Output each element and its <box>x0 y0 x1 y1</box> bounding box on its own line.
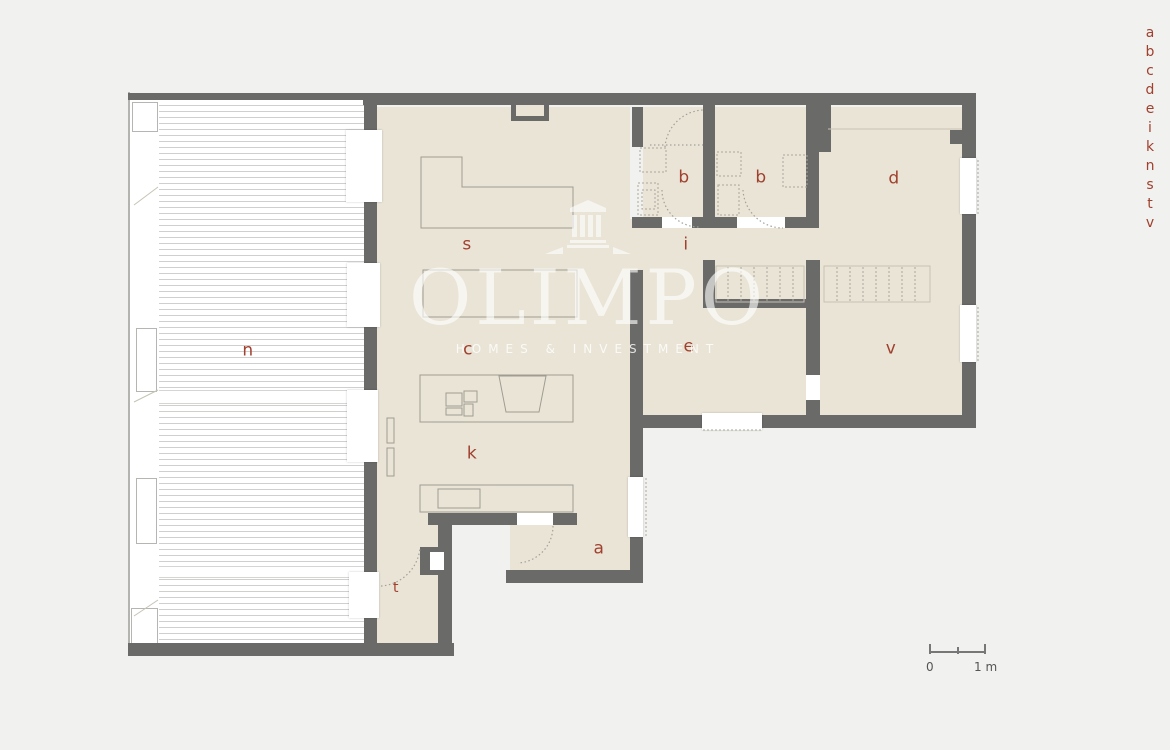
terrace-slider-window <box>347 263 380 327</box>
louver-panel <box>131 608 158 644</box>
legend-letter: k <box>1138 138 1162 157</box>
room-v-west-wall-upper <box>806 260 820 375</box>
floor-plan-canvas: s c k n t a b b i e d v OLIMPO HOMES & I… <box>0 0 1170 750</box>
kitchen-south-wall-right <box>553 513 577 525</box>
louver-panel <box>136 478 157 544</box>
room-t-east-wall <box>438 513 452 656</box>
terrace-bottom-wall <box>128 643 454 656</box>
terrace-door-opening <box>349 572 379 618</box>
scale-bar-tick <box>984 644 986 654</box>
terrace-decking <box>159 100 364 643</box>
top-wall-notch-inner <box>516 105 544 116</box>
bathroom1-south-wall-right <box>692 217 703 228</box>
bathroom2-floor <box>715 107 806 219</box>
bathroom1-west-wall <box>632 107 643 147</box>
living-kitchen-floor <box>377 107 630 523</box>
room-label-i: i <box>683 237 688 254</box>
terrace-slider-window <box>346 130 382 202</box>
louver-panel <box>132 102 158 132</box>
deck-joint <box>159 566 364 578</box>
scale-bar: 0 1 m <box>920 640 1010 680</box>
bedroom-d-window <box>960 158 976 214</box>
room-v-door-opening <box>806 375 820 400</box>
entry-a-south-wall <box>506 570 643 583</box>
entry-a-east-wall-lower <box>630 537 643 572</box>
bathroom2-door-opening <box>737 217 785 228</box>
scale-bar-tick <box>957 647 959 654</box>
legend-letter-column: a b c d e i k n s t v <box>1138 24 1162 233</box>
room-e-window <box>702 413 762 430</box>
bathroom1-door-opening <box>662 217 692 228</box>
room-v-west-wall-lower <box>806 400 820 415</box>
main-top-wall <box>363 93 975 105</box>
legend-letter: d <box>1138 81 1162 100</box>
bathroom1-south-wall-left <box>632 217 662 228</box>
entry-a-east-wall-upper <box>630 427 643 477</box>
room-label-b1: b <box>678 170 689 187</box>
room-v-window <box>960 305 976 362</box>
legend-letter: c <box>1138 62 1162 81</box>
room-label-n: n <box>242 343 253 360</box>
room-label-t: t <box>393 581 399 595</box>
bathroom1-floor <box>643 107 703 219</box>
entry-a-floor <box>510 523 643 570</box>
room-e-floor <box>643 290 806 415</box>
room-label-v: v <box>886 341 897 358</box>
room-e-west-wall <box>630 270 643 427</box>
scale-bar-tick <box>929 644 931 654</box>
deck-joint <box>159 390 364 404</box>
legend-letter: a <box>1138 24 1162 43</box>
right-wall-notch <box>950 130 962 144</box>
terrace-top-wall <box>128 93 365 100</box>
right-outer-wall <box>962 93 976 428</box>
room-label-d: d <box>888 171 899 188</box>
legend-letter: e <box>1138 100 1162 119</box>
south-east-wall <box>630 415 976 428</box>
bathroom2-south-wall-left <box>715 217 737 228</box>
louver-panel <box>136 328 157 392</box>
legend-letter: i <box>1138 119 1162 138</box>
room-label-s: s <box>462 237 471 254</box>
entry-a-window <box>628 477 643 537</box>
legend-letter: t <box>1138 195 1162 214</box>
room-label-k: k <box>467 446 477 463</box>
terrace-slider-window <box>347 390 378 462</box>
scale-zero-label: 0 <box>926 660 934 674</box>
scale-one-meter-label: 1 m <box>974 660 997 674</box>
bedroom-d-west-wall <box>818 103 831 152</box>
room-label-a: a <box>594 541 605 558</box>
legend-letter: b <box>1138 43 1162 62</box>
bathroom2-east-wall <box>806 105 819 228</box>
room-t-duct-inner <box>430 552 444 570</box>
legend-letter: n <box>1138 157 1162 176</box>
bathroom-partition-wall <box>703 105 715 228</box>
closet-south-wall <box>703 299 817 308</box>
entry-a-door-opening <box>517 513 553 525</box>
room-label-c: c <box>463 342 473 359</box>
room-label-b2: b <box>755 170 766 187</box>
legend-letter: s <box>1138 176 1162 195</box>
bathroom2-south-wall-right <box>785 217 806 228</box>
legend-letter: v <box>1138 214 1162 233</box>
room-label-e: e <box>684 339 695 356</box>
